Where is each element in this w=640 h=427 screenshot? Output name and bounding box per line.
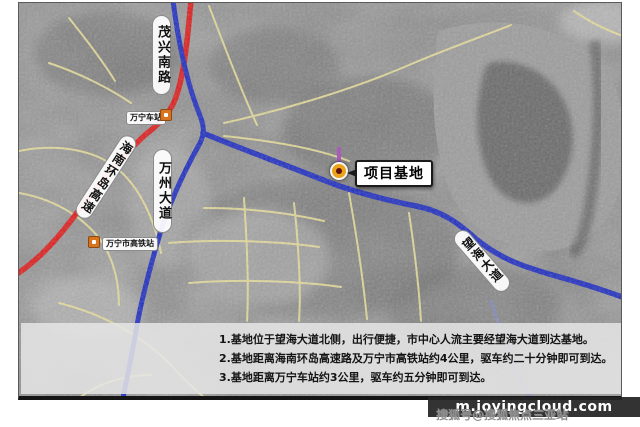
info-line-2: 2.基地距离海南环岛高速路及万宁市高铁站约4公里，驱车约二十分钟即可到达。	[219, 349, 612, 368]
wanning-station-icon	[160, 109, 172, 121]
project-base-marker-icon	[330, 162, 348, 180]
marker-center-dot	[336, 168, 342, 174]
info-line-3: 3.基地距离万宁车站约3公里，驱车约五分钟即可到达。	[219, 368, 612, 387]
location-info-box: 1.基地位于望海大道北侧，出行便捷，市中心人流主要经望海大道到达基地。 2.基地…	[21, 323, 621, 394]
info-line-1: 1.基地位于望海大道北侧，出行便捷，市中心人流主要经望海大道到达基地。	[219, 330, 612, 349]
page: 茂兴南路 万宁车站 海南环岛高速 万州大道 万宁市高铁站 望海大道 项目基地 1…	[0, 0, 640, 427]
watermark-byline-text: 搜狐号@搜狐焦点三亚站	[436, 406, 568, 423]
hsr-station-icon	[88, 236, 100, 248]
road-label-maoxing-south-road: 茂兴南路	[152, 15, 171, 95]
project-base-callout: 项目基地	[355, 160, 433, 187]
road-label-wanzhou-avenue: 万州大道	[153, 149, 172, 233]
satellite-map: 茂兴南路 万宁车站 海南环岛高速 万州大道 万宁市高铁站 望海大道 项目基地 1…	[18, 2, 622, 400]
road-label-wanning-hsr-station: 万宁市高铁站	[102, 237, 158, 251]
